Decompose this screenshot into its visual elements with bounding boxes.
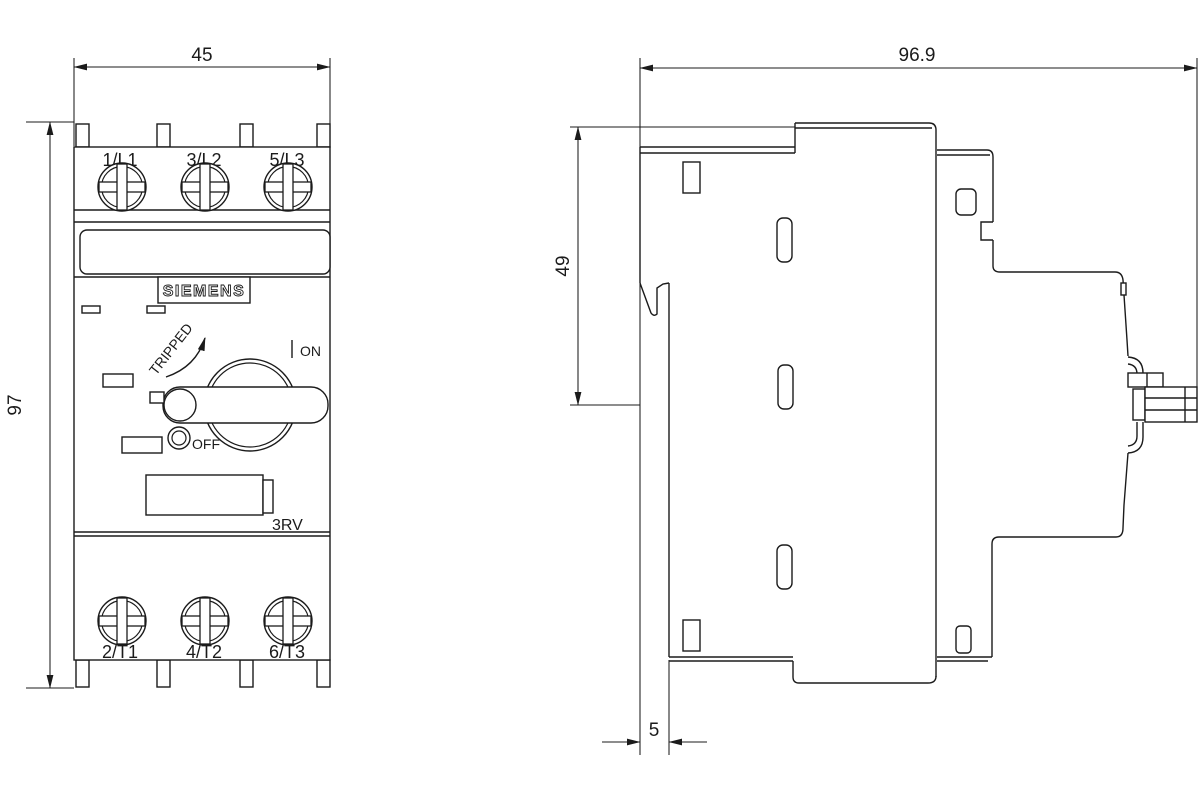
front-view: 45 97 xyxy=(5,45,330,688)
vent-slot xyxy=(956,626,971,653)
front-width-dimension: 45 xyxy=(74,45,330,146)
vent-slot xyxy=(777,218,792,262)
center-foot xyxy=(793,661,936,683)
side-49-label: 49 xyxy=(553,255,574,276)
vent-slot xyxy=(956,189,976,215)
terminal-screw-icon xyxy=(264,597,312,645)
knob-pivot xyxy=(164,389,196,421)
brand-plate: SIEMENS xyxy=(158,277,250,303)
terminal-label-4t2: 4/T2 xyxy=(186,642,222,662)
terminal-label-2t1: 2/T1 xyxy=(102,642,138,662)
off-label: OFF xyxy=(192,436,220,452)
vent-slot xyxy=(777,545,792,589)
side-depth-label: 96.9 xyxy=(899,45,936,66)
side-49-dimension: 49 xyxy=(553,127,795,405)
vent-slot xyxy=(778,365,793,409)
din-rail-hook xyxy=(640,283,669,315)
vent-slot xyxy=(683,162,700,193)
terminal-screw-icon xyxy=(98,597,146,645)
siemens-3rv-dimension-drawing: 45 97 xyxy=(0,0,1200,800)
brand-logo-text: SIEMENS xyxy=(163,283,246,300)
on-label: ON xyxy=(300,343,321,359)
terminal-screw-icon xyxy=(181,163,229,211)
knob-shaft-side xyxy=(1128,357,1197,453)
side-outline xyxy=(640,123,1128,683)
front-height-label: 97 xyxy=(5,394,26,415)
front-height-dimension: 97 xyxy=(5,122,74,688)
dimension-drawing-page: 45 97 xyxy=(0,0,1200,800)
side-5-dimension: 5 xyxy=(602,283,707,755)
reset-window xyxy=(122,437,162,453)
front-clip-notch xyxy=(981,222,993,240)
side-5-label: 5 xyxy=(649,720,660,741)
indicator-window xyxy=(103,374,133,387)
terminal-screw-icon xyxy=(98,163,146,211)
terminal-screw-icon xyxy=(264,163,312,211)
top-terminals: 1/L1 3/L2 5/L3 xyxy=(98,150,312,211)
vent-slot xyxy=(683,620,700,651)
side-vent-slots xyxy=(683,162,976,653)
series-label: 3RV xyxy=(272,517,303,534)
off-symbol xyxy=(168,427,190,449)
terminal-screw-icon xyxy=(181,597,229,645)
terminal-label-6t3: 6/T3 xyxy=(269,642,305,662)
side-depth-dimension: 96.9 xyxy=(640,45,1197,388)
bottom-terminals: 2/T1 4/T2 6/T3 xyxy=(98,597,312,662)
front-width-label: 45 xyxy=(191,45,212,66)
side-view: 96.9 49 5 xyxy=(553,45,1197,755)
